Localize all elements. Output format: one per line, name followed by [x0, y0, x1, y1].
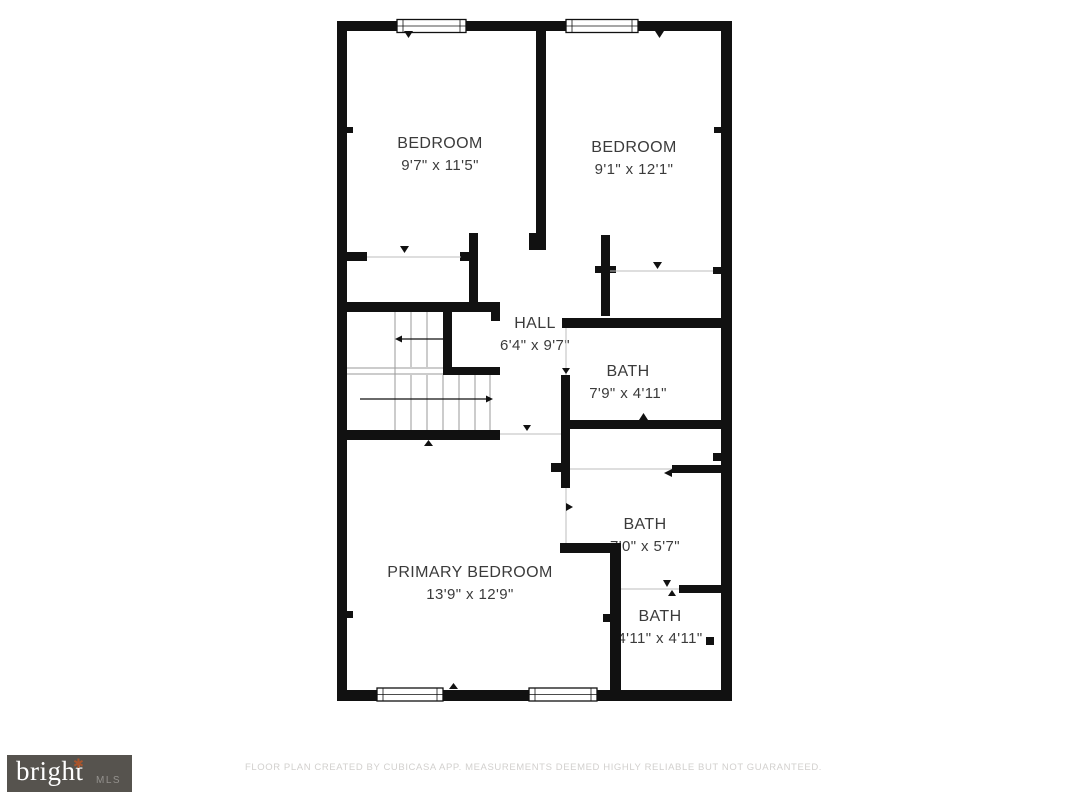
- bright-mls-logo: bright ✱ MLS: [7, 755, 132, 792]
- floor-plan-page: BEDROOM 9'7" x 11'5" BEDROOM 9'1" x 12'1…: [0, 0, 1067, 800]
- window-symbols: [377, 20, 638, 702]
- window-icon: [397, 20, 466, 33]
- logo-star-icon: ✱: [73, 757, 84, 772]
- interior-walls: [347, 31, 721, 690]
- window-icon: [566, 20, 638, 33]
- outer-walls: [337, 21, 732, 701]
- disclaimer-text: FLOOR PLAN CREATED BY CUBICASA APP. MEAS…: [200, 762, 867, 773]
- floor-plan-drawing: [0, 0, 1067, 800]
- logo-mls-text: MLS: [96, 775, 121, 786]
- wall-ticks: [347, 127, 721, 645]
- window-icon: [529, 688, 597, 701]
- stair-arrow-up-icon: [395, 336, 402, 343]
- window-icon: [377, 688, 443, 701]
